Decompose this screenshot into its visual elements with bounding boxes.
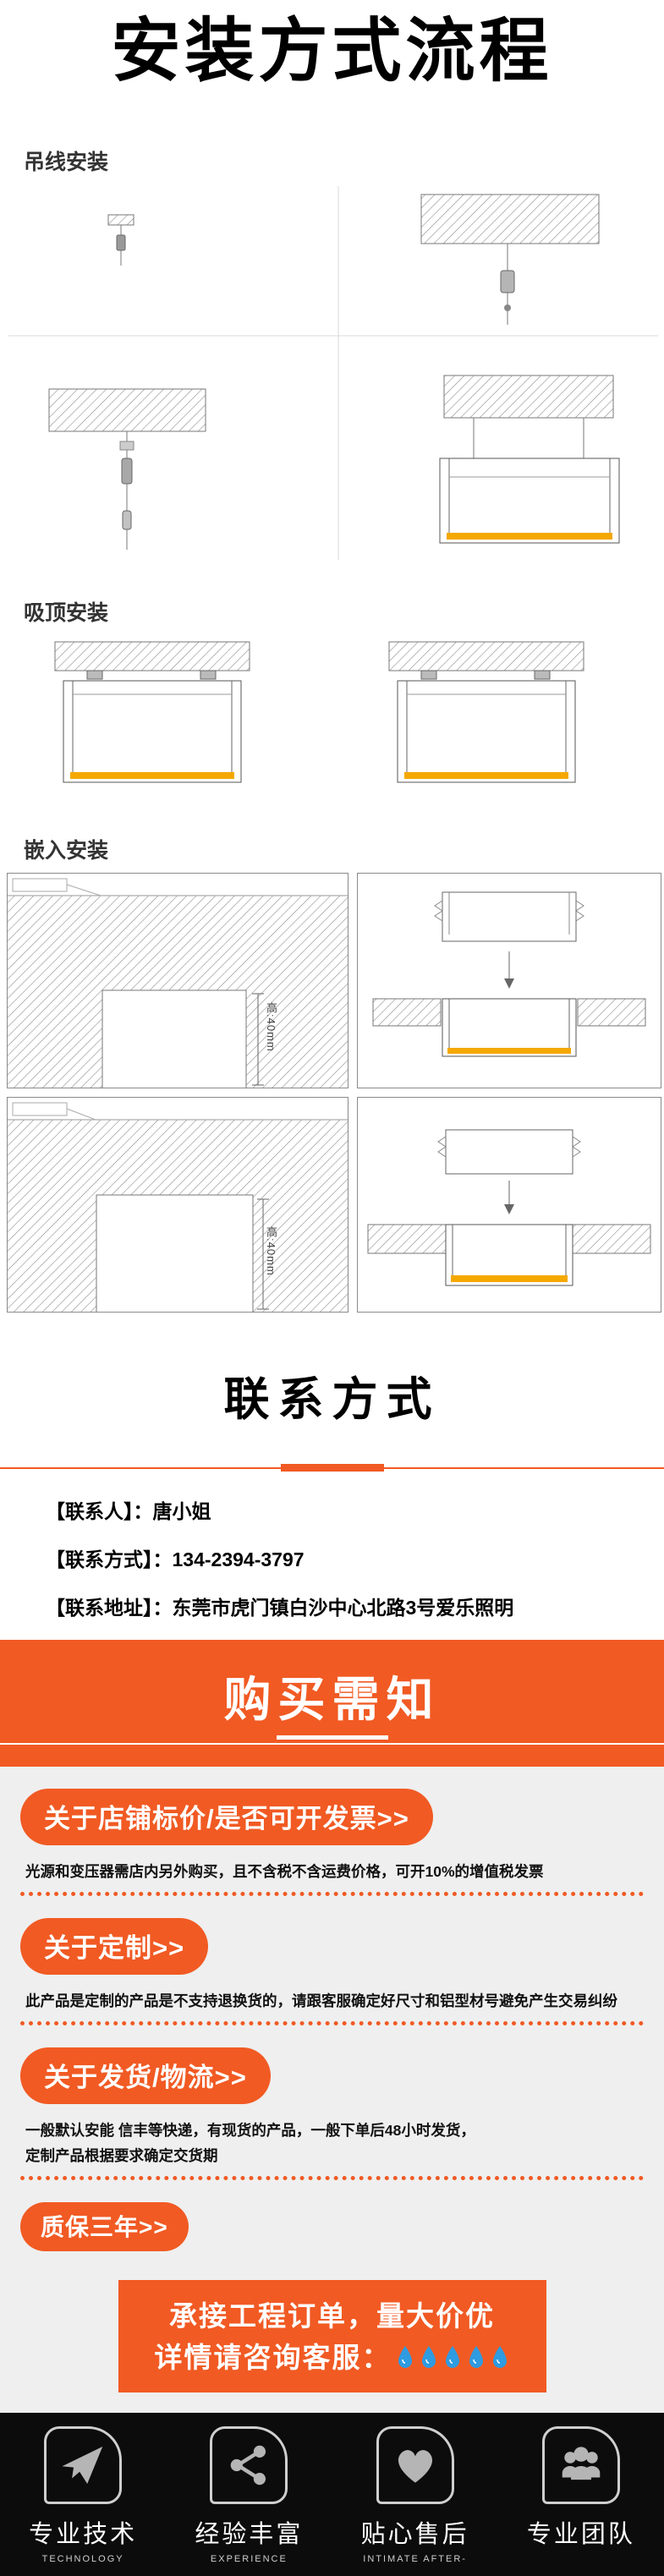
contact-address-row: 【联系地址】：东莞市虎门镇白沙中心北路3号爱乐照明: [46, 1592, 664, 1620]
section-divider: [0, 1464, 664, 1472]
contact-phone-label: 【联系方式】：: [46, 1548, 173, 1570]
dotted-separator: [20, 2176, 644, 2180]
features-footer: 专业技术 TECHNOLOGY 经验丰富 EXPERIENCE 贴心售后 INT…: [0, 2413, 664, 2576]
purchase-notice-title: 购买需知: [0, 1640, 664, 1730]
dotted-separator: [20, 2021, 644, 2025]
feature-label: 专业团队: [498, 2514, 664, 2550]
contact-address-label: 【联系地址】：: [46, 1597, 173, 1619]
paper-plane-icon: [44, 2426, 122, 2504]
share-icon: [210, 2426, 288, 2504]
feature-label: 专业技术: [0, 2514, 166, 2550]
suspension-install-diagram: [0, 179, 664, 564]
purchase-notice-banner: 购买需知: [0, 1640, 664, 1767]
install-section: 吊线安装: [0, 145, 664, 1313]
faq-body-shipping: 一般默认安能 信丰等快递，有现货的产品，一般下单后48小时发货， 定制产品根据要…: [25, 2118, 640, 2169]
height-dimension-label: 高:40mm: [263, 1002, 279, 1052]
wangwang-icon: [490, 2345, 510, 2370]
contact-title: 联系方式: [0, 1362, 664, 1428]
wangwang-icon: [442, 2345, 463, 2370]
recessed-cutout-diagram-1: 高:40mm: [7, 873, 348, 1088]
contact-phone-value: 134-2394-3797: [173, 1548, 305, 1570]
wangwang-icon: [395, 2345, 415, 2370]
height-dimension-label: 高:40mm: [263, 1226, 279, 1276]
dotted-separator: [20, 1892, 644, 1896]
faq-body-shipping-line1: 一般默认安能 信丰等快递，有现货的产品，一般下单后48小时发货，: [25, 2118, 640, 2144]
feature-sublabel: EXPERIENCE: [166, 2554, 332, 2565]
recessed-row-1: 高:40mm: [7, 873, 657, 1088]
feature-sublabel: [498, 2554, 664, 2565]
feature-team: 专业团队: [498, 2426, 664, 2565]
product-detail-page: 安装方式流程 吊线安装: [0, 0, 664, 2576]
recessed-insert-diagram-1: [357, 873, 661, 1088]
recessed-cutout-diagram-2: 高:40mm: [7, 1097, 348, 1313]
bulk-order-cta: 承接工程订单，量大价优 详情请咨询客服：: [118, 2280, 546, 2392]
contact-person-label: 【联系人】：: [46, 1500, 153, 1522]
feature-experience: 经验丰富 EXPERIENCE: [166, 2426, 332, 2565]
feature-label: 经验丰富: [166, 2514, 332, 2550]
feature-sublabel: INTIMATE AFTER-: [332, 2554, 498, 2565]
faq-pill-custom: 关于定制>>: [20, 1918, 208, 1975]
page-title: 安装方式流程: [0, 0, 664, 91]
contact-address-value: 东莞市虎门镇白沙中心北路3号爱乐照明: [173, 1597, 514, 1619]
ceiling-install-heading: 吸顶安装: [24, 596, 664, 627]
feature-technology: 专业技术 TECHNOLOGY: [0, 2426, 166, 2565]
title-underline: [277, 1735, 388, 1740]
contact-phone-row: 【联系方式】：134-2394-3797: [46, 1543, 664, 1572]
faq-body-custom: 此产品是定制的产品是不支持退换货的，请跟客服确定好尺寸和铝型材号避免产生交易纠纷: [25, 1988, 640, 2014]
feature-label: 贴心售后: [332, 2514, 498, 2550]
wangwang-icon: [466, 2345, 486, 2370]
faq-pill-warranty: 质保三年>>: [20, 2202, 189, 2251]
faq-body-invoice: 光源和变压器需店内另外购买，且不含税不含运费价格，可开10%的增值税发票: [25, 1859, 640, 1885]
contact-person-value: 唐小姐: [153, 1500, 211, 1522]
wangwang-icon: [419, 2345, 439, 2370]
feature-aftersale: 贴心售后 INTIMATE AFTER-: [332, 2426, 498, 2565]
ceiling-install-diagram: [0, 630, 664, 812]
faq-pill-shipping: 关于发货/物流>>: [20, 2047, 271, 2104]
contact-person-row: 【联系人】：唐小姐: [46, 1495, 664, 1524]
recessed-row-2: 高:40mm: [7, 1097, 657, 1313]
banner-rule: [0, 1743, 664, 1745]
recessed-install-heading: 嵌入安装: [24, 834, 664, 864]
cta-line1: 承接工程订单，量大价优: [118, 2295, 546, 2338]
cta-line2: 详情请咨询客服：: [155, 2337, 392, 2379]
recessed-insert-diagram-2: [357, 1097, 661, 1313]
purchase-notice-section: 购买需知 关于店铺标价/是否可开发票>> 光源和变压器需店内另外购买，且不含税不…: [0, 1640, 664, 2413]
heart-icon: [376, 2426, 454, 2504]
hanging-install-heading: 吊线安装: [24, 145, 664, 176]
team-icon: [542, 2426, 620, 2504]
feature-sublabel: TECHNOLOGY: [0, 2554, 166, 2565]
faq-pill-invoice: 关于店铺标价/是否可开发票>>: [20, 1789, 433, 1845]
contact-section: 联系方式 【联系人】：唐小姐 【联系方式】：134-2394-3797 【联系地…: [0, 1362, 664, 1620]
faq-body-shipping-line2: 定制产品根据要求确定交货期: [25, 2143, 640, 2169]
purchase-notice-body: 关于店铺标价/是否可开发票>> 光源和变压器需店内另外购买，且不含税不含运费价格…: [0, 1767, 664, 2413]
